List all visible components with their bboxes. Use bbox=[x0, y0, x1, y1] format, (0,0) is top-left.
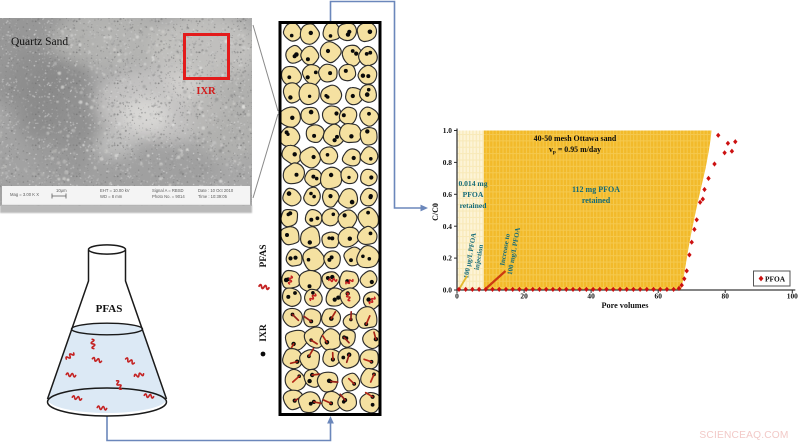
svg-text:Date : 10 Oct 2010: Date : 10 Oct 2010 bbox=[198, 188, 234, 193]
svg-text:40: 40 bbox=[587, 291, 595, 300]
svg-text:EHT = 10.00 kV: EHT = 10.00 kV bbox=[100, 188, 130, 193]
svg-text:Pore volumes: Pore volumes bbox=[602, 301, 649, 310]
svg-text:0.014 mg: 0.014 mg bbox=[458, 179, 487, 188]
svg-text:IXR: IXR bbox=[196, 86, 216, 97]
svg-text:10μm: 10μm bbox=[56, 188, 67, 193]
svg-text:0.4: 0.4 bbox=[443, 222, 453, 231]
svg-text:PFAS: PFAS bbox=[259, 244, 269, 267]
svg-text:0.6: 0.6 bbox=[443, 190, 453, 199]
svg-text:80: 80 bbox=[722, 291, 730, 300]
svg-text:100: 100 bbox=[787, 291, 798, 300]
svg-text:retained: retained bbox=[460, 201, 488, 210]
svg-text:Photo No. = 9014: Photo No. = 9014 bbox=[152, 194, 185, 199]
svg-text:PFOA: PFOA bbox=[463, 190, 484, 199]
svg-text:vp = 0.95 m/day: vp = 0.95 m/day bbox=[549, 145, 601, 156]
svg-text:40-50 mesh Ottawa sand: 40-50 mesh Ottawa sand bbox=[534, 134, 617, 143]
svg-text:0.2: 0.2 bbox=[443, 254, 453, 263]
svg-text:1.0: 1.0 bbox=[443, 126, 453, 135]
svg-text:Time : 10:39:05: Time : 10:39:05 bbox=[198, 194, 228, 199]
svg-text:PFOA: PFOA bbox=[765, 275, 786, 284]
svg-text:0.0: 0.0 bbox=[443, 286, 453, 295]
svg-text:retained: retained bbox=[582, 196, 611, 205]
svg-text:SCIENCEAQ.COM: SCIENCEAQ.COM bbox=[699, 430, 788, 441]
svg-text:C/C0: C/C0 bbox=[431, 203, 440, 221]
svg-text:Quartz Sand: Quartz Sand bbox=[11, 36, 68, 48]
svg-text:PFAS: PFAS bbox=[96, 303, 123, 315]
svg-text:Mag = 3.00 K X: Mag = 3.00 K X bbox=[10, 192, 39, 197]
svg-text:60: 60 bbox=[655, 291, 663, 300]
svg-text:0: 0 bbox=[455, 291, 459, 300]
svg-text:0.8: 0.8 bbox=[443, 158, 453, 167]
svg-text:20: 20 bbox=[520, 291, 528, 300]
svg-text:112 mg PFOA: 112 mg PFOA bbox=[572, 185, 620, 194]
svg-text:WD = 8 mm: WD = 8 mm bbox=[100, 194, 123, 199]
svg-text:Signal A = RBSD: Signal A = RBSD bbox=[152, 188, 184, 193]
svg-text:IXR: IXR bbox=[259, 324, 269, 342]
